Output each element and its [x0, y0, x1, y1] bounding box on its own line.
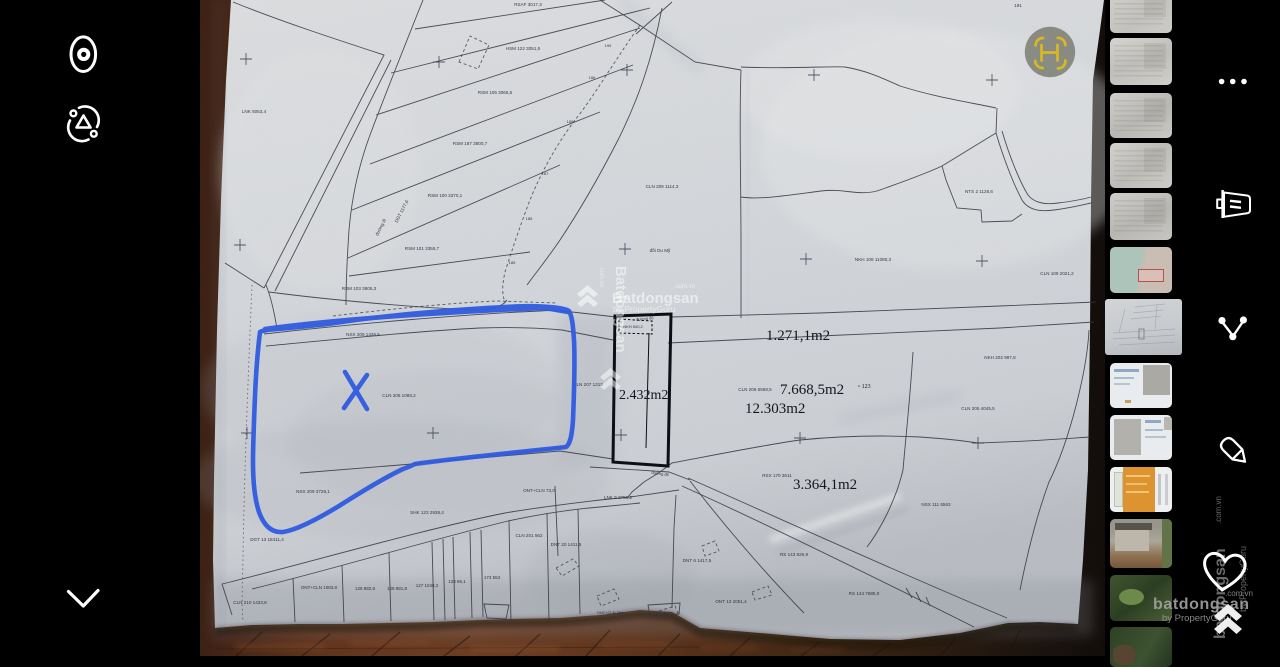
- svg-text:CLN 206 6568,5: CLN 206 6568,5: [738, 387, 772, 392]
- svg-text:DNT 20 1411,5: DNT 20 1411,5: [551, 542, 582, 547]
- svg-text:RSM 105 3065,5: RSM 105 3065,5: [478, 90, 513, 95]
- svg-text:LNK 5053,4: LNK 5053,4: [242, 109, 267, 114]
- svg-text:Batdongsan: Batdongsan: [612, 266, 629, 353]
- svg-text:NSX 209 3728,1: NSX 209 3728,1: [296, 489, 330, 494]
- svg-text:RSM 100 3370,1: RSM 100 3370,1: [428, 193, 463, 198]
- svg-text:173 553: 173 553: [484, 575, 501, 580]
- svg-text:RSM 101 3355,7: RSM 101 3355,7: [405, 246, 440, 251]
- svg-text:đồi Du Mỹ: đồi Du Mỹ: [650, 248, 671, 253]
- svg-text:128 86,1: 128 86,1: [448, 579, 466, 584]
- svg-text:DNT 6 1417,5: DNT 6 1417,5: [683, 558, 712, 563]
- svg-text:191: 191: [1014, 3, 1022, 8]
- svg-text:.com.vn: .com.vn: [598, 266, 604, 287]
- svg-text:HSM 122 3051,5: HSM 122 3051,5: [506, 46, 541, 51]
- svg-text:ONT+CLN 204: ONT+CLN 204: [597, 610, 624, 615]
- svg-text:ONT+CLN 73,0: ONT+CLN 73,0: [523, 488, 555, 493]
- svg-text:CLN 209 1114,3: CLN 209 1114,3: [646, 184, 679, 189]
- svg-text:12.303m2: 12.303m2: [745, 401, 805, 417]
- svg-text:RSAF 3017,3: RSAF 3017,3: [514, 2, 542, 7]
- svg-text:7.668,5m2: 7.668,5m2: [780, 382, 844, 398]
- svg-text:1.271,1m2: 1.271,1m2: [766, 328, 830, 344]
- svg-text:CLN 201 562: CLN 201 562: [515, 533, 543, 538]
- svg-text:DGT 13 18411,4: DGT 13 18411,4: [250, 537, 284, 542]
- svg-text:▫ 123: ▫ 123: [858, 384, 871, 390]
- svg-text:127 1048,2: 127 1048,2: [416, 583, 439, 588]
- svg-text:CLN 208 1088,2: CLN 208 1088,2: [382, 393, 416, 398]
- svg-text:185: 185: [526, 216, 533, 221]
- svg-text:3.364,1m2: 3.364,1m2: [793, 477, 857, 493]
- svg-text:186: 186: [589, 75, 596, 80]
- svg-text:LNK 9 2756,2: LNK 9 2756,2: [604, 495, 633, 500]
- svg-text:188: 188: [567, 119, 574, 124]
- svg-text:NSX 111 6563: NSX 111 6563: [921, 502, 951, 507]
- svg-text:NSX 209 1435,5: NSX 209 1435,5: [346, 332, 380, 337]
- svg-text:2.432m2: 2.432m2: [619, 388, 668, 403]
- svg-text:CLN 207 1313: CLN 207 1313: [573, 382, 603, 387]
- svg-text:CLN 109 2021,2: CLN 109 2021,2: [1040, 271, 1074, 276]
- svg-text:128 881,8: 128 881,8: [387, 586, 408, 591]
- svg-text:CLN 210 1433,8: CLN 210 1433,8: [233, 600, 267, 605]
- svg-text:187: 187: [542, 171, 549, 176]
- svg-text:.com.vn: .com.vn: [674, 284, 695, 290]
- svg-text:CLN 205 4045,5: CLN 205 4045,5: [961, 406, 995, 411]
- svg-text:RS 144 7885,0: RS 144 7885,0: [849, 591, 880, 596]
- svg-text:SHK 123 2938,4: SHK 123 2938,4: [410, 510, 444, 515]
- svg-text:RSM 103 3805,3: RSM 103 3805,3: [342, 286, 377, 291]
- svg-text:NKH 108 11080,3: NKH 108 11080,3: [855, 257, 892, 262]
- svg-text:RSM 187 3800,7: RSM 187 3800,7: [453, 141, 488, 146]
- svg-text:RSX 170 3611: RSX 170 3611: [762, 473, 792, 478]
- svg-text:ONT+CLN 1083,8: ONT+CLN 1083,8: [301, 585, 338, 590]
- svg-text:195: 195: [605, 43, 612, 48]
- svg-text:128 882,8: 128 882,8: [355, 586, 376, 591]
- svg-text:NTS 2 1126,6: NTS 2 1126,6: [965, 189, 993, 194]
- svg-text:ONT 13 2051,4: ONT 13 2051,4: [715, 599, 747, 604]
- svg-text:185: 185: [509, 260, 516, 265]
- svg-text:NKH 202 997,8: NKH 202 997,8: [984, 355, 1016, 360]
- svg-text:RS 143 925,9: RS 143 925,9: [780, 552, 809, 557]
